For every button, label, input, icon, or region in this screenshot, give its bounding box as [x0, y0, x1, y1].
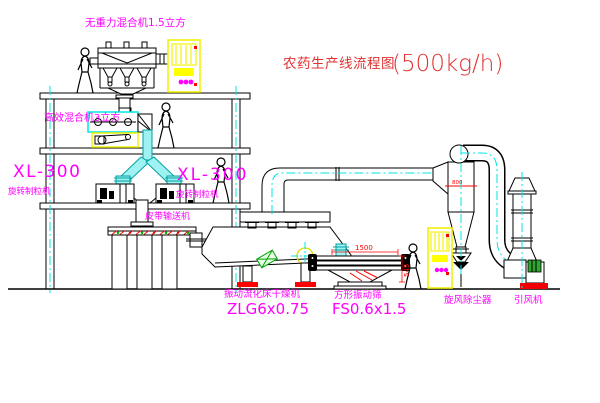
control-cabinet-lower	[428, 228, 452, 288]
label-cyclone: 旋风除尘器	[444, 294, 492, 306]
flow-diagram-canvas: 农药生产线流程图 (500kg/h) 无重力混合机1.5立方 高效混合机3立方 …	[0, 0, 600, 403]
control-cabinet-upper	[168, 40, 200, 92]
label-screen-model: FS0.6x1.5	[332, 300, 406, 318]
label-granulator-left-model: XL-300	[13, 162, 81, 182]
label-granulator-left-name: 旋转制粒机	[8, 186, 51, 197]
cabinet-knobs	[179, 80, 194, 85]
diagram-title: 农药生产线流程图	[283, 56, 395, 72]
dim-screen-height: 545	[403, 264, 411, 277]
label-dryer-model: ZLG6x0.75	[227, 300, 309, 318]
diagram-title-capacity: (500kg/h)	[392, 51, 503, 77]
label-fan: 引风机	[514, 294, 543, 306]
dim-cyclone: 800	[452, 180, 463, 186]
cabinet-knobs	[435, 268, 448, 272]
label-granulator-right-model: XL-300	[177, 165, 248, 185]
mixer-discharge-spouts	[103, 68, 151, 86]
cad-flow-diagram: 农药生产线流程图 (500kg/h) 无重力混合机1.5立方 高效混合机3立方 …	[0, 0, 600, 403]
label-gravity-mixer: 无重力混合机1.5立方	[85, 16, 186, 29]
label-belt-conveyor: 皮带输送机	[145, 210, 190, 222]
person-roof-floor	[77, 48, 93, 93]
label-granulator-right-name: 旋转制粒机	[176, 189, 219, 200]
gravity-mixer-drawing	[90, 42, 169, 112]
belt-drive-box	[92, 133, 138, 147]
granulator-left-drawing	[96, 184, 134, 203]
belt-conveyor-drawing	[108, 227, 196, 289]
dim-screen-length: 1500	[355, 244, 373, 252]
label-dryer-name: 振动流化床干燥机	[224, 288, 301, 300]
person-second-floor	[158, 103, 174, 148]
label-high-efficiency-mixer: 高效混合机3立方	[44, 111, 120, 124]
